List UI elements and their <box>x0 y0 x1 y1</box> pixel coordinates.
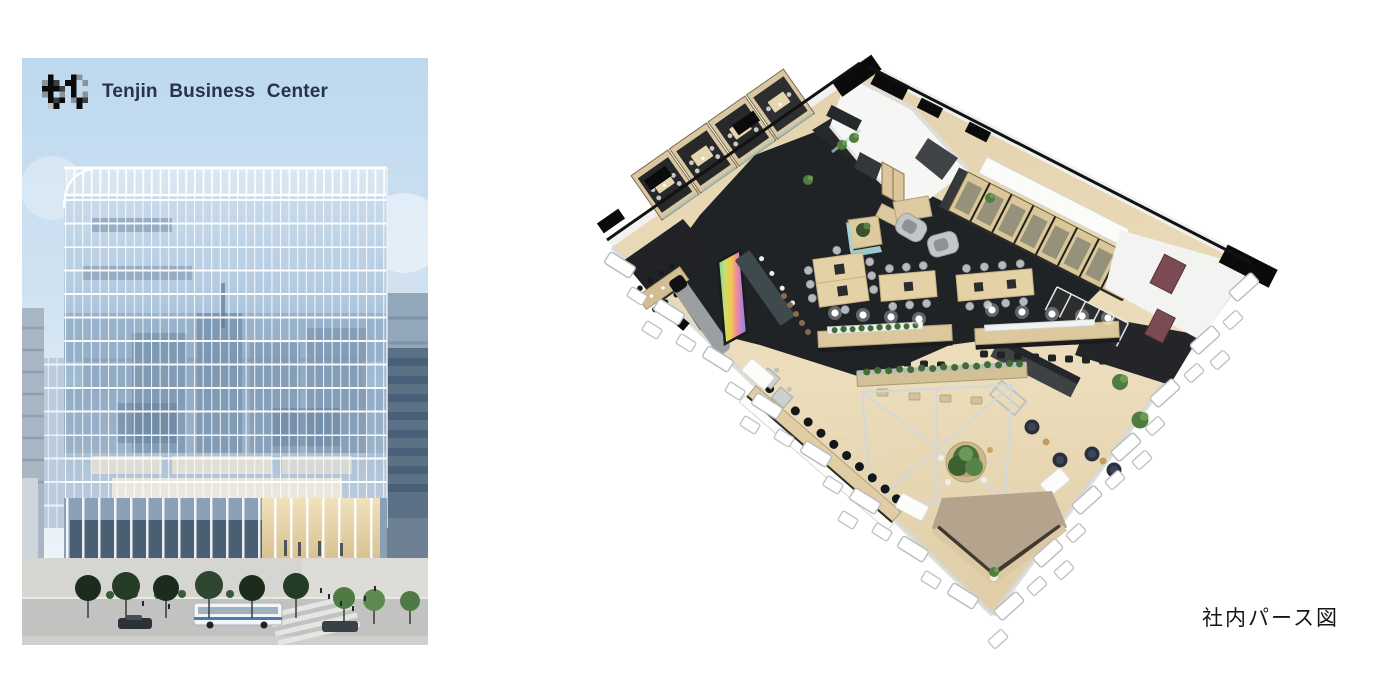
bc-pixel-logo-icon <box>42 74 88 109</box>
page-canvas: Tenjin Business Center <box>0 0 1380 694</box>
building-exterior-art <box>22 58 428 645</box>
glass-tower <box>64 168 387 560</box>
floorplan-caption: 社内パース図 <box>1202 602 1372 632</box>
brand-title: Tenjin Business Center <box>102 81 328 103</box>
floorplan-art <box>560 30 1280 650</box>
teal-kiosk <box>846 216 882 257</box>
brand-lockup: Tenjin Business Center <box>42 74 328 109</box>
office-interior-isometric <box>560 30 1280 650</box>
bus <box>194 603 282 629</box>
street-scene <box>22 558 428 645</box>
building-exterior-photo: Tenjin Business Center <box>22 58 428 645</box>
